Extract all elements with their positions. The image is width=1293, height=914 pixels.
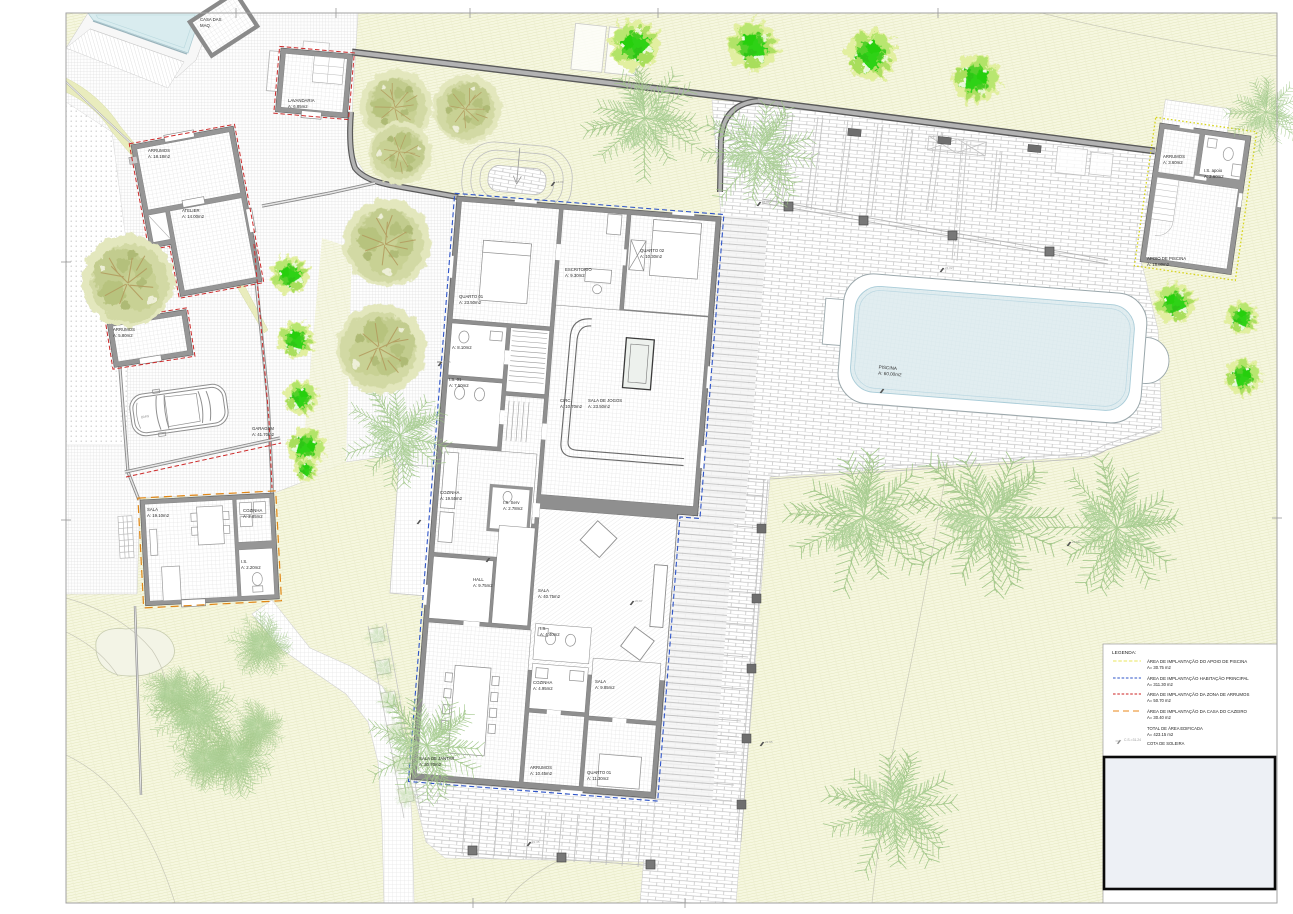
- svg-text:I.S. apoio: I.S. apoio: [1204, 168, 1223, 173]
- svg-text:16.00: 16.00: [556, 180, 564, 184]
- svg-text:HALL: HALL: [473, 577, 484, 582]
- svg-text:21.15: 21.15: [443, 360, 451, 364]
- svg-text:ÁREA DE IMPLANTAÇÃO DO APOIO D: ÁREA DE IMPLANTAÇÃO DO APOIO DE PISCINA: [1147, 659, 1247, 664]
- svg-text:SALA: SALA: [595, 679, 606, 684]
- svg-text:APOIO DE PISCINA: APOIO DE PISCINA: [1147, 256, 1186, 261]
- svg-text:COTA DE SOLEIRA: COTA DE SOLEIRA: [1147, 741, 1185, 746]
- svg-text:A= 311.30 m2: A= 311.30 m2: [1147, 682, 1174, 687]
- svg-text:A: 2.85m2: A: 2.85m2: [243, 514, 263, 519]
- svg-text:LEGENDA:: LEGENDA:: [1112, 650, 1136, 656]
- svg-text:ÁREA DE IMPLANTAÇÃO DA ZONA DE: ÁREA DE IMPLANTAÇÃO DA ZONA DE ARRUMOS: [1147, 692, 1249, 697]
- svg-text:MAQ.: MAQ.: [200, 23, 211, 28]
- svg-text:24.02: 24.02: [945, 266, 953, 270]
- svg-text:A: 5.80m2: A: 5.80m2: [113, 333, 133, 338]
- svg-text:TOTAL DE ÁREA EDIFICADA: TOTAL DE ÁREA EDIFICADA: [1147, 726, 1203, 731]
- svg-text:A= 50.70 m2: A= 50.70 m2: [1147, 698, 1172, 703]
- svg-text:I.S. Serv: I.S. Serv: [503, 500, 520, 505]
- svg-text:COZINHA: COZINHA: [440, 490, 459, 495]
- svg-text:COZINHA: COZINHA: [533, 680, 552, 685]
- svg-text:20.67: 20.67: [635, 599, 643, 603]
- svg-text:A: 18.18m2: A: 18.18m2: [148, 154, 171, 159]
- svg-text:A: 3.60m2: A: 3.60m2: [1163, 160, 1183, 165]
- svg-text:C.S.=31.24: C.S.=31.24: [1124, 738, 1141, 742]
- svg-text:I.S.: I.S.: [540, 626, 546, 631]
- svg-text:ARRUMOS: ARRUMOS: [148, 148, 170, 153]
- svg-text:15.00: 15.00: [762, 200, 770, 204]
- svg-text:A: 10.70m2: A: 10.70m2: [560, 404, 583, 409]
- svg-text:A= 30.40 m2: A= 30.40 m2: [1147, 715, 1172, 720]
- svg-text:A: 18.80m2: A: 18.80m2: [1147, 262, 1170, 267]
- svg-text:A= 30.75 m2: A= 30.75 m2: [1147, 665, 1172, 670]
- svg-text:A: 4.40m2: A: 4.40m2: [540, 632, 560, 637]
- svg-text:I.S.: I.S.: [241, 559, 247, 564]
- svg-text:A: 41.70m2: A: 41.70m2: [252, 432, 275, 437]
- svg-text:I.S. 01: I.S. 01: [449, 377, 462, 382]
- svg-text:A: 14.00m2: A: 14.00m2: [182, 214, 205, 219]
- svg-text:22.35: 22.35: [532, 840, 540, 844]
- svg-text:ATELIER: ATELIER: [182, 208, 200, 213]
- svg-text:A= 423.15 m2: A= 423.15 m2: [1147, 732, 1174, 737]
- svg-text:A: 8.10m2: A: 8.10m2: [452, 345, 472, 350]
- svg-text:A: 23.50m2: A: 23.50m2: [459, 300, 482, 305]
- svg-text:ÁREA DE IMPLANTAÇÃO HABITAÇÃO: ÁREA DE IMPLANTAÇÃO HABITAÇÃO PRINCIPAL: [1147, 676, 1249, 681]
- svg-text:A: 6.85m2: A: 6.85m2: [288, 104, 308, 109]
- svg-text:A: 9.85m2: A: 9.85m2: [595, 685, 615, 690]
- svg-text:A: 2.78m2: A: 2.78m2: [503, 506, 523, 511]
- svg-text:QUARTO 02: QUARTO 02: [640, 248, 665, 253]
- svg-text:QUARTO 01: QUARTO 01: [459, 294, 484, 299]
- svg-text:ARRUMOS: ARRUMOS: [530, 765, 552, 770]
- svg-text:ESCRITORIO: ESCRITORIO: [565, 267, 592, 272]
- svg-text:A: 19.10m2: A: 19.10m2: [147, 513, 170, 518]
- svg-text:A: 4.95m2: A: 4.95m2: [533, 686, 553, 691]
- svg-text:A: 2.20m2: A: 2.20m2: [241, 565, 261, 570]
- svg-text:A: 9.30m2: A: 9.30m2: [565, 273, 585, 278]
- svg-text:A: 19.55m2: A: 19.55m2: [440, 496, 463, 501]
- svg-text:SALA DE JOGOS: SALA DE JOGOS: [588, 398, 622, 403]
- svg-text:SALA: SALA: [538, 588, 549, 593]
- svg-text:23.60: 23.60: [1072, 540, 1080, 544]
- svg-text:A: 7.50m2: A: 7.50m2: [449, 383, 469, 388]
- svg-text:A: 23.50m2: A: 23.50m2: [588, 404, 611, 409]
- svg-text:22.95: 22.95: [765, 740, 773, 744]
- svg-text:COZINHA: COZINHA: [243, 508, 262, 513]
- svg-text:A: 11.30m2: A: 11.30m2: [587, 776, 609, 781]
- svg-text:CIRC.: CIRC.: [560, 398, 572, 403]
- svg-text:A: 10.45m2: A: 10.45m2: [530, 771, 553, 776]
- svg-text:CASA DAS: CASA DAS: [200, 17, 222, 22]
- svg-text:A: 10.30m2: A: 10.30m2: [640, 254, 663, 259]
- svg-text:SALA: SALA: [147, 507, 158, 512]
- svg-text:SALA DE JANTAR: SALA DE JANTAR: [419, 756, 455, 761]
- svg-text:A: 2.60m2: A: 2.60m2: [1204, 174, 1224, 179]
- svg-text:A: 40.75m2: A: 40.75m2: [538, 594, 561, 599]
- svg-text:A: 9.75m2: A: 9.75m2: [473, 583, 493, 588]
- svg-text:A: 30.70m2: A: 30.70m2: [419, 762, 442, 767]
- svg-text:QUARTO 01: QUARTO 01: [587, 770, 612, 775]
- svg-text:ARRUMOS: ARRUMOS: [1163, 154, 1185, 159]
- svg-text:LAVANDARIA: LAVANDARIA: [288, 98, 315, 103]
- svg-text:ÁREA DE IMPLANTAÇÃO DA CASA DO: ÁREA DE IMPLANTAÇÃO DA CASA DO CAZEIRO: [1147, 709, 1248, 714]
- svg-text:GARAGEM: GARAGEM: [252, 426, 274, 431]
- svg-text:ARRUMOS: ARRUMOS: [113, 327, 135, 332]
